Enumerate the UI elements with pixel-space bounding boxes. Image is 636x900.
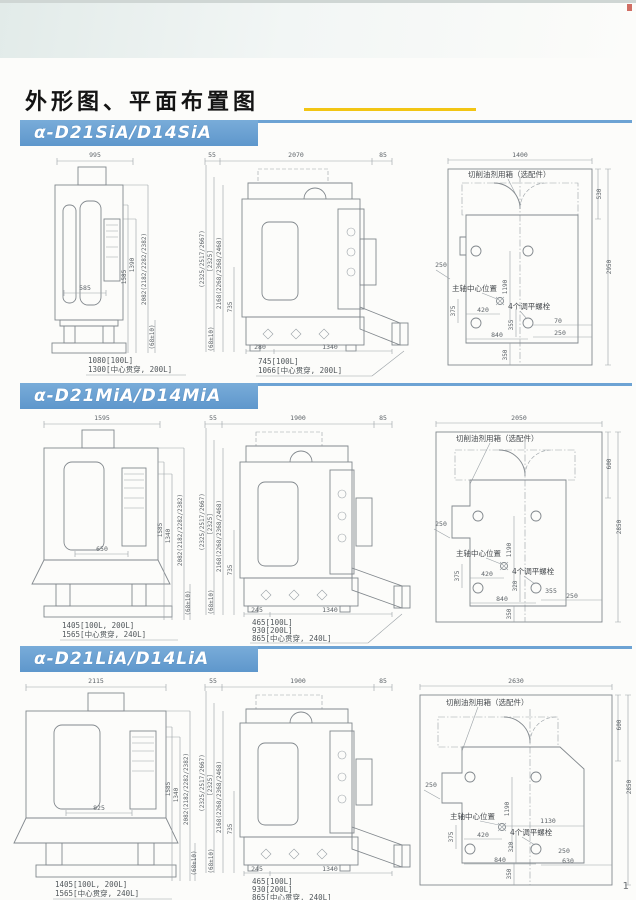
model-name: α-D21MiA/D14MiA [34,386,221,406]
dim-side-b2: 1340 [322,865,338,873]
dim-plan-depth: 2850 [616,519,623,534]
dim-side-b2: 1340 [322,606,338,614]
dim-plan-r1: 70 [554,317,562,325]
dim-side-b1: 245 [251,606,263,614]
dim-plan-width: 1400 [512,151,528,159]
dim-plan-840: 840 [496,595,508,603]
dim-side-b1: 280 [254,343,266,351]
dim-plan-320: 320 [508,841,515,852]
dim-plan-1190: 1190 [506,542,513,557]
page-number: 1 [623,881,629,892]
dim-plan-door: 530 [596,188,603,199]
dim-plan-r2: 250 [566,592,578,600]
dim-plan-420: 420 [481,570,493,578]
dim-plan-width: 2630 [508,677,524,685]
dim-plan-mid: 355 [508,319,515,330]
front-view-figure: 995 585 1585 1390 2082(2182/2282/2382) (… [52,151,186,375]
tank-label: 切削油剂用箱（选配件） [446,697,529,707]
dim-side-d3: 85 [379,151,387,159]
dim-front-inner: 650 [96,545,108,553]
dim-front-h2: 1340 [173,787,180,802]
dim-side-tol: (68±10) [208,589,215,614]
dim-side-v4: 735 [227,564,234,575]
dim-side-d1: 55 [209,414,217,422]
model-name: α-D21SiA/D14SiA [34,123,212,143]
dim-plan-left: 250 [435,261,447,269]
dim-side-tol: (68±10) [208,326,215,351]
dim-side-d3: 85 [379,414,387,422]
dim-plan-left: 250 [425,781,437,789]
dim-front-h1: 1585 [157,522,164,537]
dim-front-tol: (68±10) [149,324,156,349]
dim-side-v4: 735 [227,823,234,834]
drawing-set-l: 2115 825 1585 1340 2082(2182/2282/2382) … [0,673,636,900]
page-title: 外形图、平面布置图 [25,84,259,116]
dim-side-b2: 1340 [322,343,338,351]
dim-plan-375: 375 [448,831,455,842]
dim-side-v4: 735 [227,301,234,312]
plan-view-figure: 1400 切削油剂用箱（选配件） 主轴中心位置 4个调平螺栓 250 375 4… [435,151,613,365]
front-view-figure: 2115 825 1585 1340 2082(2182/2282/2382) … [14,677,198,899]
front-note-2: 1565[中心贯穿, 240L] [55,888,139,898]
dim-front-total: 2082(2182/2282/2382) [141,233,148,305]
dim-front-width: 1595 [94,414,110,422]
dim-plan-320: 320 [512,580,519,591]
dim-plan-1130: 1130 [540,817,556,825]
plan-view-figure: 2050 切削油剂用箱（选配件） 主轴中心位置 4个调平螺栓 250 375 4… [434,414,623,622]
model-banner: α-D21SiA/D14SiA [20,120,258,146]
front-note-1: 1080[100L] [88,356,133,365]
spindle-label: 主轴中心位置 [456,548,501,558]
plan-view-figure: 2630 切削油剂用箱（选配件） 主轴中心位置 4个调平螺栓 250 375 4… [420,677,633,885]
dim-side-v2: [2325] [207,774,214,796]
bolt-label: 4个调平螺栓 [512,566,555,576]
tank-label: 切削油剂用箱（选配件） [456,433,539,443]
dim-side-v1: (2325/2517/2667) [199,230,206,288]
front-note-1: 1405[100L, 200L] [62,621,134,630]
front-note-1: 1405[100L, 200L] [55,880,127,889]
model-banner: α-D21MiA/D14MiA [20,383,258,409]
model-name: α-D21LiA/D14LiA [34,649,209,669]
dim-front-h1: 1585 [165,781,172,796]
dim-side-v1: (2325/2517/2667) [199,754,206,812]
side-view-figure: 55 1900 85 (2325/2517/2667) [2325] 2168(… [199,414,410,643]
dim-plan-depth: 2850 [626,779,633,794]
dim-front-width: 2115 [88,677,104,685]
dim-side-d2: 1900 [290,677,306,685]
drawing-set-m: 1595 650 1585 1340 2082(2182/2282/2382) … [0,410,636,646]
dim-side-v3: 2168(2268/2368/2468) [216,237,223,309]
side-note-3: 865[中心贯穿, 240L] [252,633,332,643]
dim-plan-420: 420 [477,831,489,839]
side-note-1: 745[100L] [258,357,299,366]
title-underline [304,108,476,111]
dim-side-d3: 85 [379,677,387,685]
dim-plan-r2: 630 [562,857,574,865]
drawing-set-s: 995 585 1585 1390 2082(2182/2282/2382) (… [0,147,636,383]
catalog-page: 外形图、平面布置图 α-D21SiA/D14SiA 995 585 1585 1… [0,0,636,900]
tank-label: 切削油剂用箱（选配件） [468,169,551,179]
dim-front-tol: (68±10) [191,850,198,875]
bolt-label: 4个调平螺栓 [510,827,553,837]
dim-plan-1190: 1190 [504,801,511,816]
dim-front-tol: (68±10) [185,590,192,615]
dim-front-h1: 1585 [121,269,128,284]
dim-plan-1190: 1190 [502,279,509,294]
dim-front-h2: 1340 [165,528,172,543]
dim-side-v3: 2168(2268/2368/2468) [216,500,223,572]
dim-plan-350: 350 [502,349,509,360]
dim-side-b1: 245 [251,865,263,873]
dim-side-v2: [2325] [207,250,214,272]
dim-plan-door: 600 [616,719,623,730]
dim-front-total: 2082(2182/2282/2382) [177,494,184,566]
side-view-figure: 55 2070 85 (2325/2517/2667) [2325] 2168(… [199,151,408,376]
dim-front-width: 995 [89,151,101,159]
dim-plan-350: 350 [506,608,513,619]
dim-plan-r2: 250 [554,329,566,337]
model-banner: α-D21LiA/D14LiA [20,646,258,672]
dim-plan-r1: 355 [545,587,557,595]
side-view-figure: 55 1900 85 (2325/2517/2667) [2325] 2168(… [199,677,410,900]
dim-side-v1: (2325/2517/2667) [199,493,206,551]
dim-side-d2: 2070 [288,151,304,159]
dim-plan-375: 375 [450,305,457,316]
spindle-label: 主轴中心位置 [452,283,497,293]
dim-plan-door: 600 [606,458,613,469]
bolt-label: 4个调平螺栓 [508,301,551,311]
dim-side-d1: 55 [208,151,216,159]
dim-side-v3: 2168(2268/2368/2468) [216,761,223,833]
dim-front-total: 2082(2182/2282/2382) [183,753,190,825]
dim-plan-375: 375 [454,570,461,581]
dim-plan-width: 2050 [511,414,527,422]
spindle-label: 主轴中心位置 [450,811,495,821]
top-gradient-band [0,3,636,58]
dim-front-h2: 1390 [129,257,136,272]
front-note-2: 1300[中心贯穿, 200L] [88,364,172,374]
side-note-2: 1066[中心贯穿, 200L] [258,365,342,375]
dim-side-tol: (68±10) [208,848,215,873]
dim-side-d1: 55 [209,677,217,685]
side-note-3: 865[中心贯穿, 240L] [252,892,332,900]
dim-plan-420: 420 [477,306,489,314]
dim-front-inner: 585 [79,284,91,292]
dim-side-d2: 1900 [290,414,306,422]
dim-front-inner: 825 [93,804,105,812]
dim-plan-r1: 250 [558,847,570,855]
dim-plan-840: 840 [494,856,506,864]
dim-side-v2: [2325] [207,513,214,535]
corner-print-mark [627,4,632,11]
front-note-2: 1565[中心贯穿, 240L] [62,629,146,639]
dim-plan-depth: 2950 [606,259,613,274]
front-view-figure: 1595 650 1585 1340 2082(2182/2282/2382) … [32,414,192,640]
dim-plan-350: 350 [506,868,513,879]
dim-plan-left: 250 [435,520,447,528]
dim-plan-840: 840 [491,331,503,339]
